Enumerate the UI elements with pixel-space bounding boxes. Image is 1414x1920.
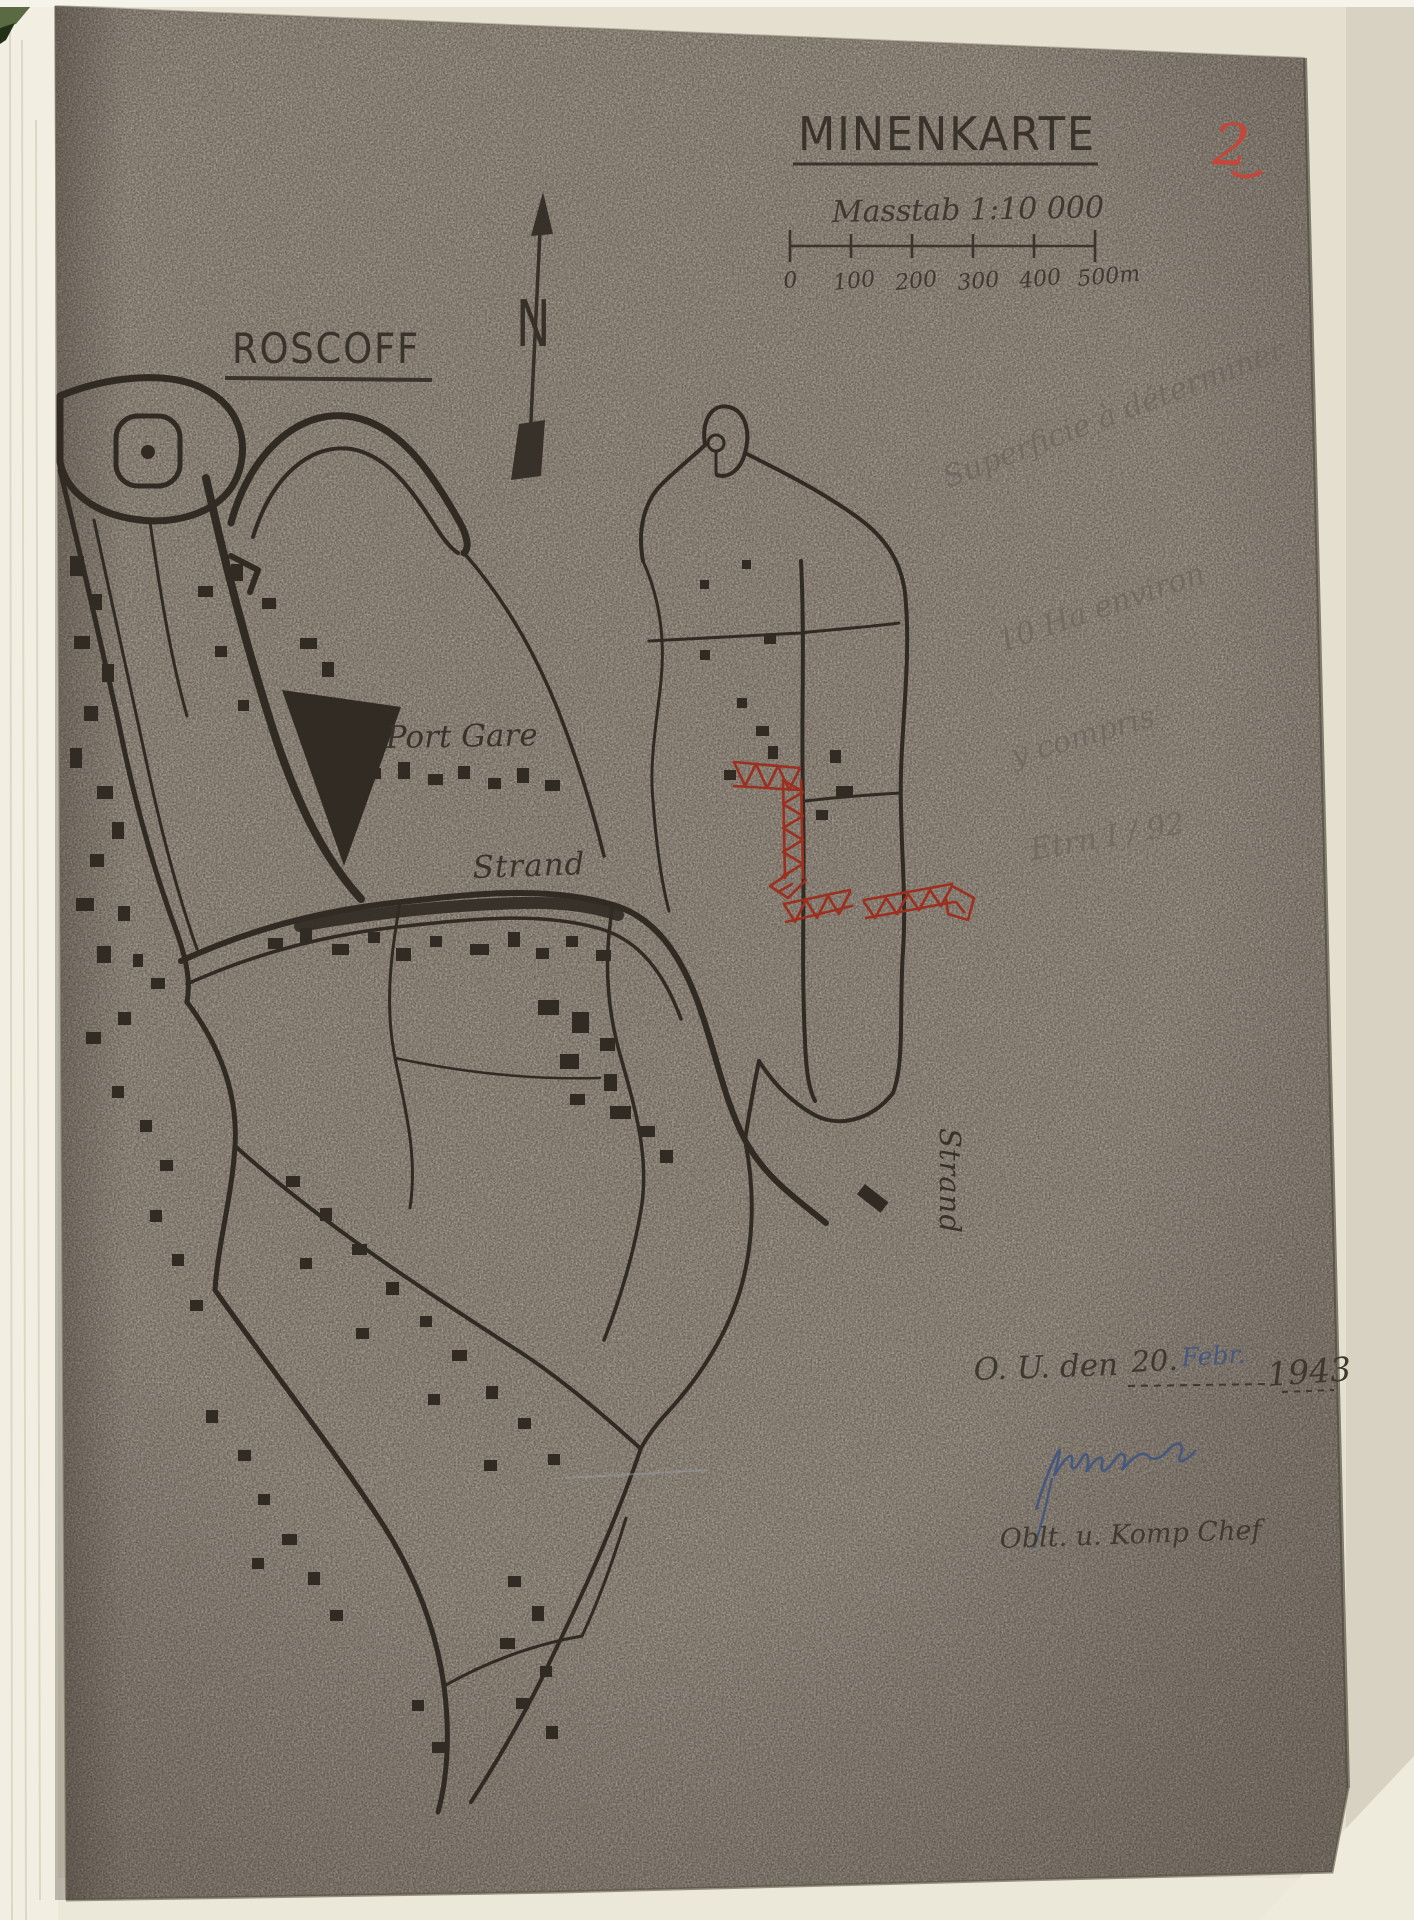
left-page-edge bbox=[0, 0, 58, 1920]
svg-text:0: 0 bbox=[782, 268, 798, 294]
minenkarte-scan: MINENKARTE Masstab 1:10 000 0 100 200 30… bbox=[0, 0, 1414, 1920]
scale-text: Masstab 1:10 000 bbox=[831, 190, 1105, 230]
town-name-underline bbox=[225, 378, 432, 380]
date-day: 20. bbox=[1130, 1343, 1179, 1379]
svg-text:300: 300 bbox=[956, 267, 1000, 296]
date-year: 1943 bbox=[1266, 1349, 1353, 1394]
photo-of-mine-map: MINENKARTE Masstab 1:10 000 0 100 200 30… bbox=[0, 0, 1414, 1920]
right-page-edge bbox=[1346, 0, 1414, 1920]
strand-label-vertical: Strand bbox=[933, 1128, 967, 1234]
svg-text:100: 100 bbox=[832, 267, 876, 296]
map-title: MINENKARTE bbox=[798, 107, 1096, 161]
date-month: Febr. bbox=[1180, 1340, 1246, 1372]
svg-text:200: 200 bbox=[893, 267, 938, 296]
port-gare-label: Port Gare bbox=[385, 717, 538, 756]
dateline-prefix: O. U. den bbox=[973, 1347, 1119, 1388]
town-name: ROSCOFF bbox=[232, 324, 420, 373]
strand-label-horizontal: Strand bbox=[472, 846, 586, 886]
page-number: 2 bbox=[1210, 110, 1251, 180]
north-label: N bbox=[516, 287, 550, 362]
map-paper bbox=[55, 6, 1348, 1900]
svg-text:400: 400 bbox=[1017, 265, 1062, 294]
